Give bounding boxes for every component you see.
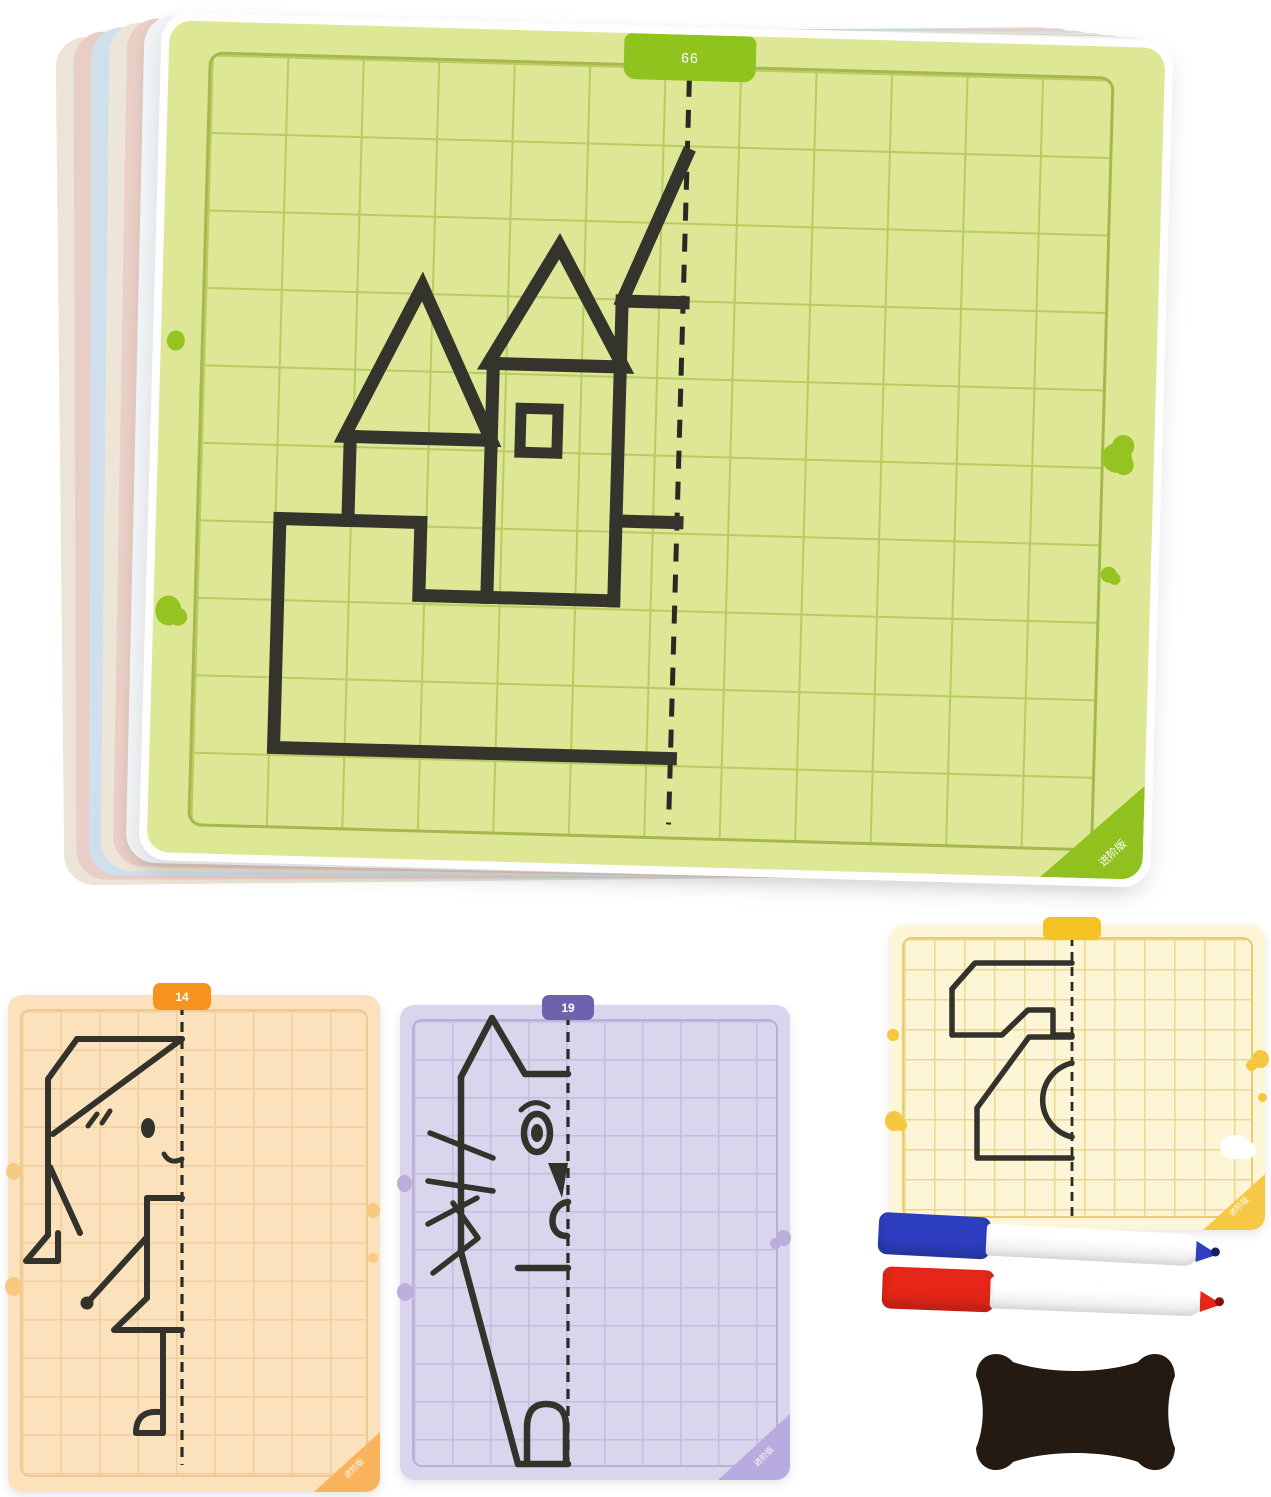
cat-nose bbox=[548, 1163, 568, 1198]
main-card-face: 66 进阶版 bbox=[147, 20, 1166, 879]
marker-nib bbox=[1211, 1247, 1220, 1256]
machine-card: 进阶版 bbox=[890, 925, 1265, 1230]
tab-label: 14 bbox=[175, 990, 188, 1004]
card-number-tab: 66 bbox=[623, 33, 756, 83]
card-stack: 66 进阶版 bbox=[55, 16, 1175, 888]
cat-pupil bbox=[531, 1124, 543, 1142]
girl-card: 14 进阶版 bbox=[8, 995, 380, 1492]
cat-drawing bbox=[400, 1005, 790, 1480]
marker-body bbox=[990, 1276, 1203, 1316]
corner-label: 进阶版 bbox=[752, 1444, 777, 1469]
marker-body bbox=[985, 1223, 1198, 1266]
marker-cap bbox=[881, 1266, 995, 1312]
product-photo: 66 进阶版 bbox=[0, 0, 1271, 1497]
corner-label: 进阶版 bbox=[1095, 836, 1130, 870]
girl-drawing bbox=[8, 995, 380, 1492]
main-green-card: 66 进阶版 bbox=[138, 12, 1173, 888]
girl-outline bbox=[26, 1039, 182, 1433]
card-number-tab: 14 bbox=[153, 983, 211, 1010]
bone-eraser bbox=[968, 1342, 1183, 1482]
castle-outline bbox=[274, 144, 688, 759]
marker-nib bbox=[1215, 1297, 1224, 1306]
tab-label: 66 bbox=[681, 50, 699, 66]
cat-card: 19 进阶版 bbox=[400, 1005, 790, 1480]
tab-label: 19 bbox=[561, 1001, 574, 1015]
sewing-machine-drawing bbox=[890, 925, 1265, 1230]
card-number-tab bbox=[1043, 917, 1101, 940]
machine-outline bbox=[952, 963, 1072, 1158]
girl-eye bbox=[141, 1118, 155, 1138]
bone-eraser-shape bbox=[976, 1354, 1175, 1470]
marker-cap bbox=[877, 1212, 991, 1260]
girl-hand-dot bbox=[81, 1297, 94, 1310]
castle-drawing bbox=[187, 51, 1114, 851]
cat-outline bbox=[428, 1018, 568, 1464]
card-number-tab: 19 bbox=[542, 995, 594, 1020]
